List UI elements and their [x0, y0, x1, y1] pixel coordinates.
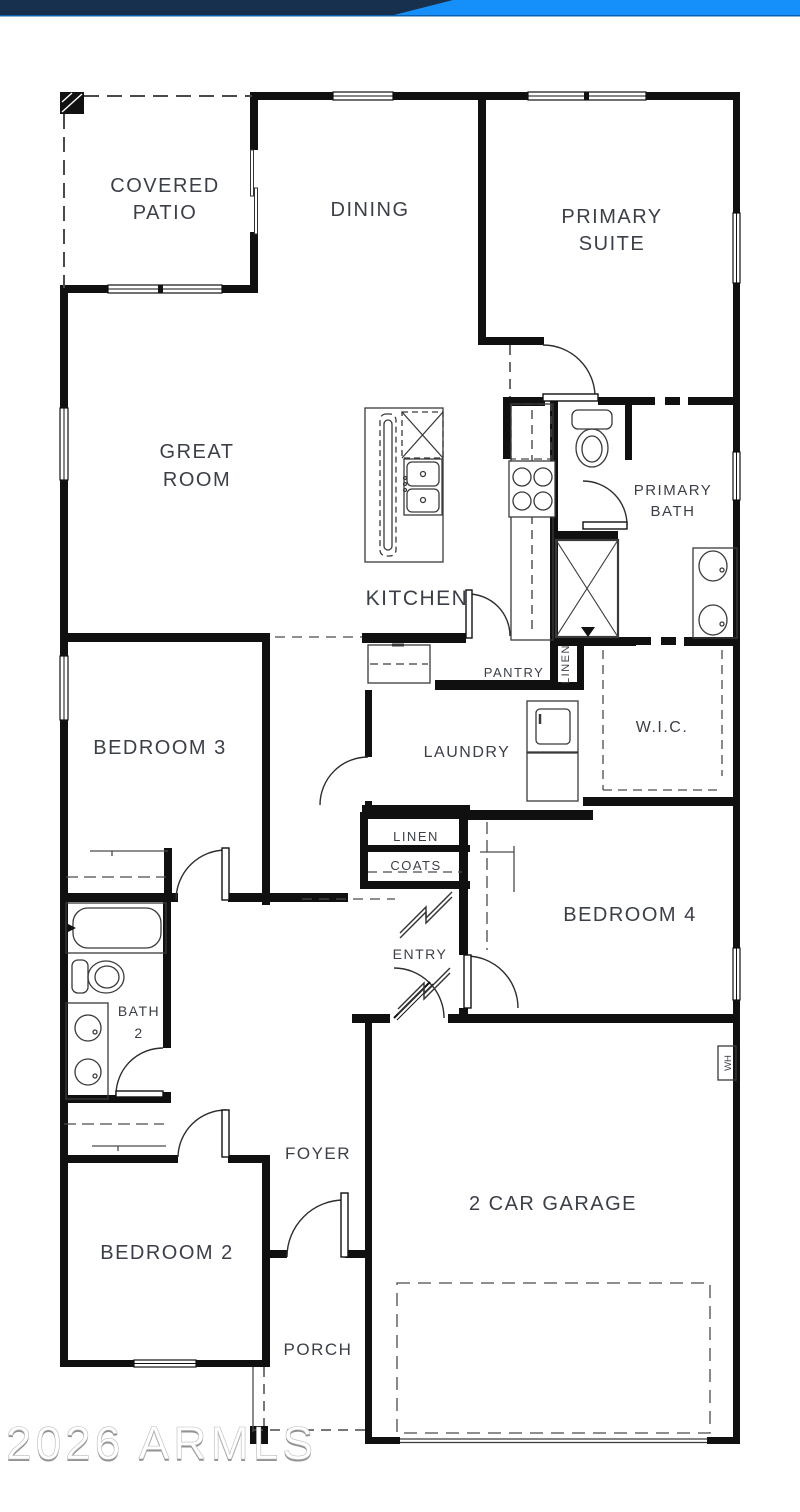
top-banner	[0, 0, 800, 17]
primary-vanity	[693, 548, 737, 638]
bath-right-window	[733, 452, 740, 500]
pantry-door-arc	[468, 594, 510, 636]
label-primary-suite-1: PRIMARY	[561, 206, 662, 228]
banner-navy-swoosh	[0, 0, 453, 16]
label-dining: DINING	[331, 199, 410, 221]
label-foyer: FOYER	[285, 1144, 351, 1163]
patio-sliding-door	[251, 150, 258, 234]
cased-openings	[636, 401, 688, 641]
label-entry: ENTRY	[393, 946, 448, 962]
cooktop	[509, 461, 555, 517]
garage-door	[372, 1437, 740, 1444]
label-primary-suite-2: SUITE	[579, 233, 645, 255]
label-wic: W.I.C.	[636, 719, 689, 736]
label-garage: 2 CAR GARAGE	[469, 1193, 637, 1215]
primary-suite-window	[528, 92, 646, 100]
garage-entry-door-leaf-2	[397, 984, 433, 1020]
bath2-toilet	[72, 960, 124, 993]
fridge-dashed	[511, 404, 551, 459]
watermark-text: 2026 ARMLS	[6, 1417, 317, 1469]
label-primary-bath-1: PRIMARY	[634, 482, 713, 499]
island-sink	[404, 459, 443, 515]
tub-faucet	[68, 924, 76, 932]
label-bath2-1: BATH	[118, 1003, 160, 1019]
bedroom3-window	[60, 656, 68, 720]
wc-door-leaf	[583, 522, 627, 529]
bedroom2-door-leaf	[222, 1110, 229, 1157]
dining-window	[333, 92, 393, 100]
banner-edge-line	[0, 15, 800, 17]
floor-plan-page: COVERED PATIO DINING PRIMARY SUITE GREAT…	[0, 0, 800, 1512]
label-water-heater: WH	[723, 1055, 734, 1071]
shower	[556, 540, 618, 637]
label-bath2-2: 2	[134, 1025, 143, 1041]
suite-door-arc	[543, 345, 595, 397]
bath2-vanity	[66, 1003, 108, 1099]
label-bedroom3: BEDROOM 3	[93, 737, 227, 759]
label-laundry: LAUNDRY	[424, 744, 511, 761]
label-covered-patio-2: PATIO	[133, 202, 198, 224]
bedroom4-door-leaf	[464, 955, 471, 1008]
dishwasher	[402, 412, 443, 458]
label-pantry: PANTRY	[484, 665, 545, 680]
front-door-leaf	[341, 1193, 348, 1257]
bath2-door-arc	[116, 1048, 163, 1095]
bath2-tub	[66, 903, 166, 953]
label-bedroom4: BEDROOM 4	[563, 904, 697, 926]
label-covered-patio-1: COVERED	[110, 175, 219, 197]
bedroom3-door-leaf	[222, 848, 229, 900]
bedroom3-door-arc	[176, 850, 226, 900]
label-coats: COATS	[390, 858, 441, 873]
bedroom2-window	[134, 1360, 196, 1367]
floor-plan-svg: COVERED PATIO DINING PRIMARY SUITE GREAT…	[0, 0, 800, 1512]
front-door-arc	[287, 1200, 344, 1257]
great-room-window	[60, 408, 68, 480]
patio-wall-window	[108, 285, 222, 293]
suite-right-window	[733, 213, 740, 283]
room-labels: COVERED PATIO DINING PRIMARY SUITE GREAT…	[93, 175, 734, 1359]
kitchen-island	[365, 408, 443, 562]
watermark: 2026 ARMLS 2026 ARMLS	[6, 1417, 317, 1471]
patio-post-hatched	[60, 92, 84, 114]
label-linen-vertical: LINEN	[560, 644, 572, 684]
kitchen-cabinet	[368, 645, 430, 683]
label-porch: PORCH	[284, 1340, 353, 1359]
washer-dryer	[527, 701, 578, 801]
wc-door-arc	[583, 481, 627, 525]
label-primary-bath-2: BATH	[651, 503, 696, 520]
laundry-door-arc	[320, 757, 368, 805]
bath2-door-leaf	[116, 1091, 163, 1097]
suite-door-leaf	[543, 394, 598, 401]
primary-toilet	[572, 410, 612, 467]
shower-valve	[581, 627, 595, 637]
label-linen: LINEN	[393, 829, 439, 844]
label-great-room-2: ROOM	[163, 469, 231, 491]
label-bedroom2: BEDROOM 2	[100, 1242, 234, 1264]
bedroom4-window	[733, 948, 740, 1000]
label-kitchen: KITCHEN	[366, 587, 469, 610]
garage-pad-dashed	[397, 1283, 710, 1433]
bedroom2-door-arc	[178, 1110, 226, 1157]
label-great-room-1: GREAT	[160, 441, 235, 463]
bedroom4-door-arc	[466, 956, 518, 1008]
